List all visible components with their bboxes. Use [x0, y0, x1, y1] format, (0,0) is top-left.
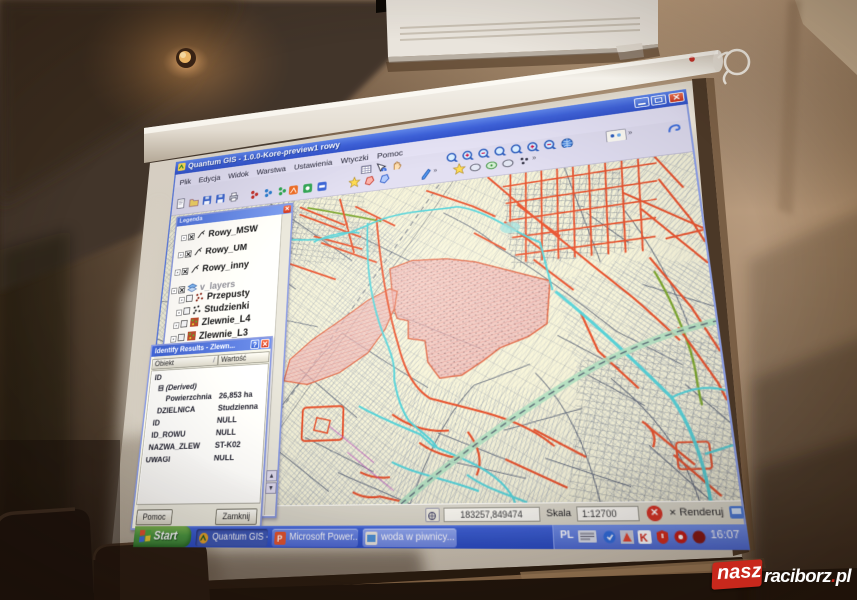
svg-text:P: P [277, 535, 283, 544]
